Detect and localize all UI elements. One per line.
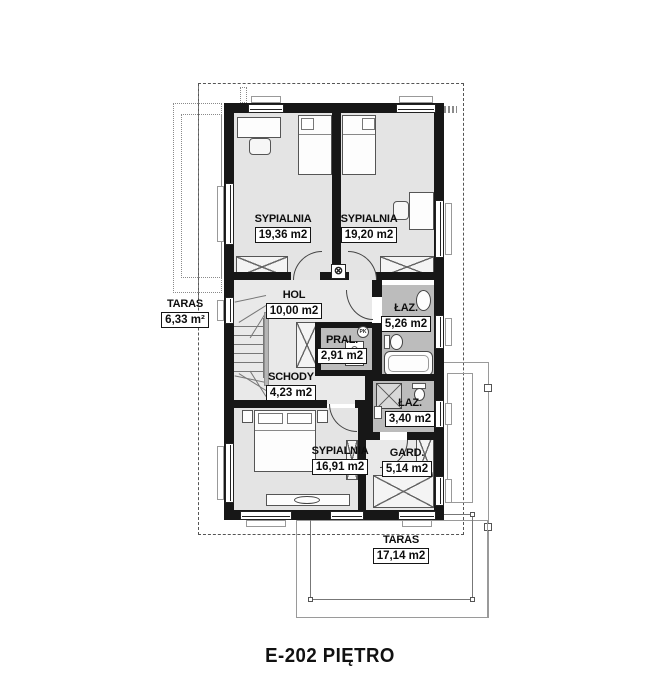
section-mark-upper xyxy=(484,384,492,392)
room-label-stairs: SCHODY 4,23 m2 xyxy=(260,371,322,401)
nightstand xyxy=(242,410,253,423)
window xyxy=(225,443,234,503)
window-sill xyxy=(402,520,432,527)
bed-fold-line xyxy=(255,430,315,431)
terrace-post xyxy=(470,597,475,602)
bed-fold-line xyxy=(343,134,375,135)
room-name: TARAS xyxy=(167,298,203,310)
room-area: 5,14 m2 xyxy=(382,461,432,477)
room-name: SYPIALNIA xyxy=(341,213,398,225)
wall-bath2-left xyxy=(365,376,373,432)
room-name: ŁAZ. xyxy=(394,302,418,314)
room-area: 10,00 m2 xyxy=(266,303,323,319)
window-sill xyxy=(445,403,452,425)
lower-roof-line-v xyxy=(488,362,489,618)
window xyxy=(398,511,436,520)
axis-line xyxy=(198,86,199,298)
room-area: 2,91 m2 xyxy=(317,348,367,364)
room-area: 3,40 m2 xyxy=(385,411,435,427)
room-name: ŁAZ. xyxy=(398,397,422,409)
room-label-terrace-left: TARAS 6,33 m² xyxy=(156,298,214,328)
wall-bedroom3-top xyxy=(234,400,327,408)
room-name: TARAS xyxy=(383,534,419,546)
wall-segment xyxy=(234,272,291,280)
wall-bath2-bottom xyxy=(365,432,380,440)
toilet-bowl xyxy=(390,334,403,350)
bed-pillow xyxy=(258,413,283,424)
nightstand xyxy=(317,410,328,423)
terrace-door-window xyxy=(330,511,364,520)
bed-fold-line xyxy=(299,134,331,135)
window xyxy=(435,315,444,349)
room-name: SCHODY xyxy=(268,371,314,383)
plan-title: E-202 PIĘTRO xyxy=(237,645,423,668)
room-label-bedroom-3: SYPIALNIA 16,91 m2 xyxy=(297,445,383,475)
room-label-laundry: PRAL. 2,91 m2 xyxy=(314,334,370,364)
wall-corridor-bath1 xyxy=(372,280,382,297)
window-sill xyxy=(217,446,224,500)
room-area: 17,14 m2 xyxy=(373,548,430,564)
vent-icon: ⊗ xyxy=(331,264,346,279)
room-label-wardrobe-room: GARD. 5,14 m2 xyxy=(378,447,436,477)
floor-plan: ⊗ PK SYPIALNIA 19,36 m2 SYPIALNIA 19,20 … xyxy=(0,0,660,675)
room-label-bedroom-1: SYPIALNIA 19,36 m2 xyxy=(240,213,326,243)
window xyxy=(225,297,234,324)
wall-bath2-bottom xyxy=(407,432,434,440)
room-area: 5,26 m2 xyxy=(381,316,431,332)
bed-pillow xyxy=(301,118,314,130)
room-area: 19,36 m2 xyxy=(255,227,312,243)
room-label-terrace-bottom: TARAS 17,14 m2 xyxy=(369,534,433,564)
desk xyxy=(237,117,281,138)
room-name: HOL xyxy=(283,289,306,301)
terrace-post xyxy=(470,512,475,517)
room-label-bathroom-2: ŁAZ. 3,40 m2 xyxy=(382,397,438,427)
sink-small xyxy=(374,406,382,419)
wall-segment xyxy=(376,272,434,280)
room-label-bedroom-2: SYPIALNIA 19,20 m2 xyxy=(326,213,412,243)
wall-section-mark xyxy=(444,106,457,113)
room-area: 16,91 m2 xyxy=(312,459,369,475)
tv-on-dresser xyxy=(294,496,320,504)
wall-bedroom-divider xyxy=(332,113,341,280)
window xyxy=(248,104,284,113)
desk xyxy=(409,192,434,230)
window xyxy=(435,476,444,506)
window-sill xyxy=(217,186,224,242)
wall-laundry-bottom xyxy=(315,370,372,376)
window-sill xyxy=(445,318,452,346)
lower-roof-line-h xyxy=(444,362,489,363)
room-area: 6,33 m² xyxy=(161,312,209,328)
window xyxy=(435,200,444,258)
window-sill xyxy=(246,520,286,527)
room-name: GARD. xyxy=(390,447,424,459)
bed-pillow xyxy=(287,413,312,424)
wall-bath1-bath2 xyxy=(372,374,434,381)
room-area: 19,20 m2 xyxy=(341,227,398,243)
window-sill xyxy=(399,96,433,103)
chimney-mark xyxy=(240,87,247,103)
window-sill xyxy=(445,479,452,503)
window-sill xyxy=(445,203,452,255)
wardrobe-cabinet xyxy=(373,475,434,508)
room-label-bathroom-1: ŁAZ. 5,26 m2 xyxy=(378,302,434,332)
terrace-door-window xyxy=(225,183,234,245)
window xyxy=(396,104,436,113)
chair xyxy=(249,138,271,155)
bathtub xyxy=(384,351,433,376)
room-label-hall: HOL 10,00 m2 xyxy=(264,289,324,319)
window xyxy=(240,511,292,520)
terrace-left-inner-outline xyxy=(181,114,222,278)
window-sill xyxy=(251,96,281,103)
terrace-post xyxy=(308,597,313,602)
bed-pillow xyxy=(362,118,375,130)
room-name: SYPIALNIA xyxy=(255,213,312,225)
window-sill xyxy=(217,300,224,321)
room-name: PRAL. xyxy=(326,334,358,346)
room-name: SYPIALNIA xyxy=(312,445,369,457)
stairs-treads xyxy=(234,318,264,378)
room-area: 4,23 m2 xyxy=(266,385,316,401)
